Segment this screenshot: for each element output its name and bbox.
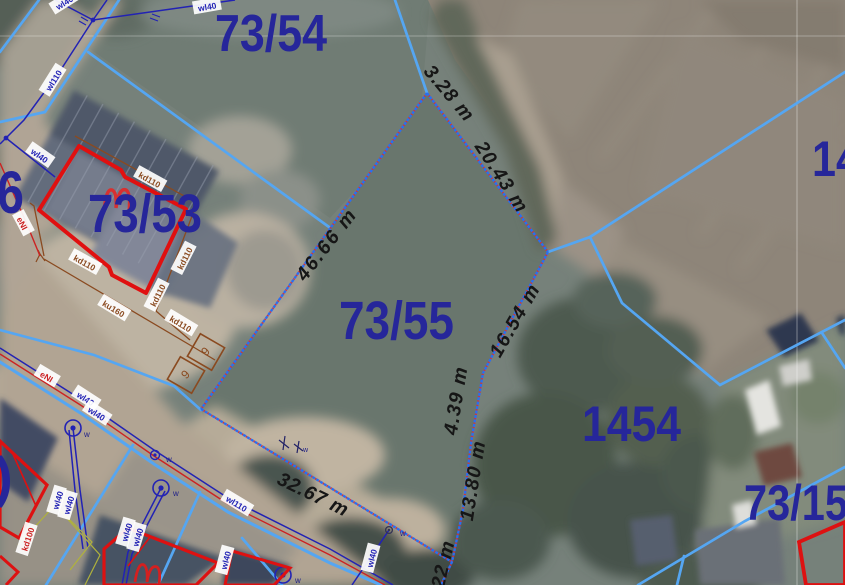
svg-text:w: w [294, 576, 301, 585]
svg-text:w: w [172, 489, 179, 498]
svg-text:w: w [399, 529, 406, 538]
svg-text:w: w [302, 447, 309, 454]
svg-text:6: 6 [0, 159, 24, 226]
svg-text:73/54: 73/54 [215, 5, 327, 63]
svg-text:w: w [165, 455, 172, 464]
svg-text:73/53: 73/53 [88, 184, 202, 244]
svg-text:1454: 1454 [582, 396, 681, 452]
svg-text:73/15: 73/15 [744, 475, 845, 531]
svg-text:14: 14 [812, 131, 845, 187]
svg-text:w: w [83, 430, 90, 439]
svg-text:73/55: 73/55 [339, 291, 454, 351]
svg-text:0): 0) [0, 445, 13, 508]
